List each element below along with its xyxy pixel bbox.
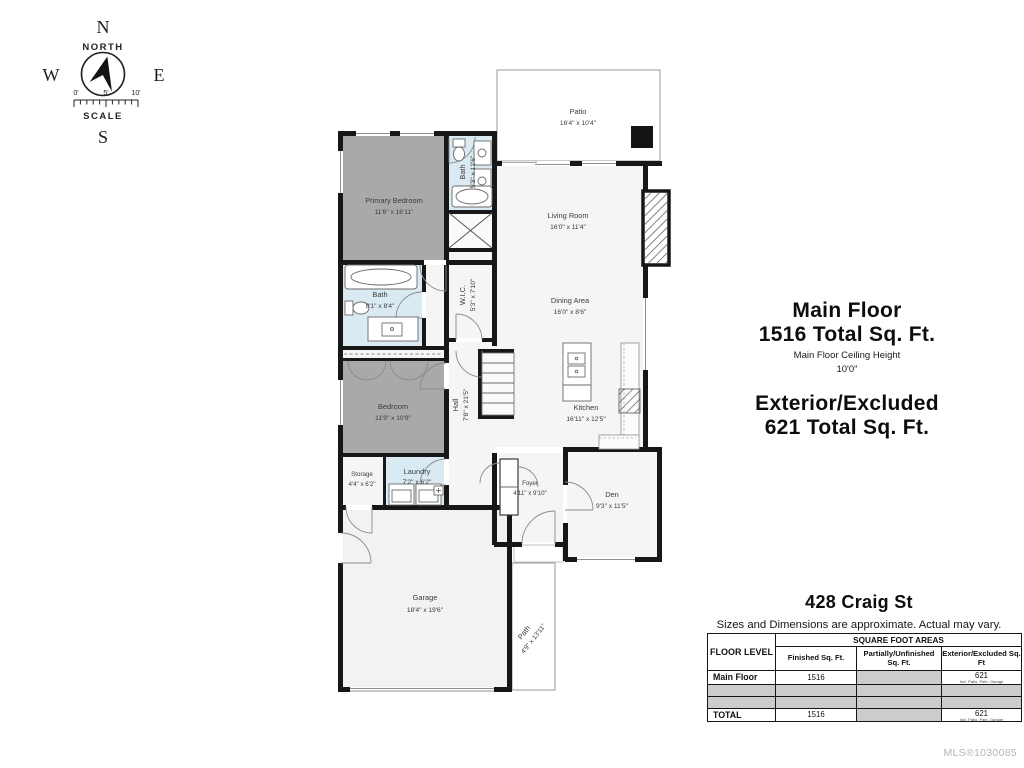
primary-bedroom-dims: 11'6" x 16'11" xyxy=(375,209,415,216)
main-floor-title: Main Floor xyxy=(697,299,997,323)
main-floor-total: 1516 Total Sq. Ft. xyxy=(697,323,997,347)
ceiling-height-value: 10'0" xyxy=(697,364,997,375)
address-block: 428 Craig St Sizes and Dimensions are ap… xyxy=(706,592,1012,631)
table-row-empty xyxy=(708,684,1022,696)
den-label: Den xyxy=(605,490,619,499)
table-row-main-floor: Main Floor 1516 621 Incl. Patio, Path, G… xyxy=(708,671,1022,685)
floorplan-drawing: Patio 16'4" x 10'4" Path 4'9" x 13'11" xyxy=(330,55,680,710)
compass-s: S xyxy=(98,127,108,147)
compass-e: E xyxy=(154,65,165,85)
room-path: Path 4'9" x 13'11" xyxy=(512,545,563,690)
kitchen-label: Kitchen xyxy=(574,403,599,412)
sqft-areas-header: SQUARE FOOT AREAS xyxy=(776,634,1022,647)
compass-w: W xyxy=(43,65,60,85)
row-level: Main Floor xyxy=(708,671,776,685)
toilet xyxy=(453,139,465,147)
scale-tick-0: 0' xyxy=(73,90,78,97)
garage-label: Garage xyxy=(413,593,438,602)
floor-level-header: FLOOR LEVEL xyxy=(708,634,776,671)
scale-label: SCALE xyxy=(83,111,123,122)
street-address: 428 Craig St xyxy=(706,592,1012,613)
laundry-fixtures xyxy=(389,484,443,505)
toilet xyxy=(345,301,353,315)
row-partial xyxy=(857,708,942,722)
wic-label: W.I.C. xyxy=(458,285,467,305)
bedroom-label: Bedroom xyxy=(378,402,408,411)
living-room-dims: 16'0" x 11'4" xyxy=(550,224,586,231)
table-row-empty xyxy=(708,696,1022,708)
row-exterior: 621 Incl. Patio, Path, Garage xyxy=(942,708,1022,722)
row-level: TOTAL xyxy=(708,708,776,722)
sqft-summary: Main Floor 1516 Total Sq. Ft. Main Floor… xyxy=(697,299,997,440)
scale-tick-5: 5' xyxy=(103,90,108,97)
col-exterior: Exterior/Excluded Sq. Ft xyxy=(942,647,1022,671)
table-row-total: TOTAL 1516 621 Incl. Patio, Path, Garage xyxy=(708,708,1022,722)
row-finished: 1516 xyxy=(776,671,857,685)
hall-dims: 7'8" x 21'5" xyxy=(463,388,470,421)
laundry-label: Laundry xyxy=(404,467,431,476)
floorplan-page: N NORTH W E 0' 5' 10' SCALE S xyxy=(0,0,1024,768)
vanity xyxy=(368,317,418,341)
dining-dims: 16'0" x 8'6" xyxy=(554,309,587,316)
stove xyxy=(619,389,640,413)
laundry-dims: 7'2" x 6'2" xyxy=(403,479,432,486)
hall-label: Hall xyxy=(451,398,460,411)
ceiling-height-label: Main Floor Ceiling Height xyxy=(697,350,997,361)
living-room-label: Living Room xyxy=(547,211,588,220)
kitchen-island xyxy=(563,343,591,401)
bath1-label: Bath xyxy=(458,164,467,179)
exterior-title: Exterior/Excluded xyxy=(697,392,997,416)
disclaimer: Sizes and Dimensions are approximate. Ac… xyxy=(706,619,1012,631)
foyer-dims: 4'11" x 9'10" xyxy=(513,490,546,497)
stairs xyxy=(482,353,514,415)
row-partial xyxy=(857,671,942,685)
bath1-dims: 5'3" x 12'6" xyxy=(470,155,477,188)
room-patio: Patio 16'4" x 10'4" xyxy=(497,70,660,161)
garage-dims: 18'4" x 19'6" xyxy=(407,607,444,614)
bath2-dims: 8'1" x 8'4" xyxy=(366,303,395,310)
storage-dims: 4'4" x 6'2" xyxy=(348,481,375,488)
exterior-note: Incl. Patio, Path, Garage xyxy=(942,680,1021,684)
patio-dims: 16'4" x 10'4" xyxy=(560,120,597,127)
bath2-label: Bath xyxy=(372,290,387,299)
bedroom-dims: 11'9" x 10'9" xyxy=(375,415,411,422)
primary-bedroom-label: Primary Bedroom xyxy=(365,196,423,205)
exterior-total: 621 Total Sq. Ft. xyxy=(697,416,997,440)
patio-label: Patio xyxy=(570,107,587,116)
kitchen-counter-lower xyxy=(599,435,639,449)
compass-north-label: NORTH xyxy=(82,42,123,53)
storage-label: Storage xyxy=(351,471,373,478)
col-finished: Finished Sq. Ft. xyxy=(776,647,857,671)
den-dims: 9'3" x 11'5" xyxy=(596,503,629,510)
wic-dims: 5'3" x 7'10" xyxy=(470,278,477,311)
dining-label: Dining Area xyxy=(551,296,590,305)
patio-pillar xyxy=(631,126,653,148)
col-partial: Partially/Unfinished Sq. Ft. xyxy=(857,647,942,671)
mls-number: MLS®1030085 xyxy=(943,747,1017,759)
porch-landing xyxy=(514,545,563,562)
sqft-table: FLOOR LEVEL SQUARE FOOT AREAS Finished S… xyxy=(707,633,1022,722)
compass-rose: N NORTH W E 0' 5' 10' SCALE S xyxy=(20,8,195,153)
scale-bar xyxy=(74,100,138,107)
row-finished: 1516 xyxy=(776,708,857,722)
compass-n: N xyxy=(97,17,110,37)
compass-needle-icon xyxy=(89,54,120,92)
exterior-note: Incl. Patio, Path, Garage xyxy=(942,718,1021,722)
kitchen-dims: 16'11" x 12'5" xyxy=(566,416,606,423)
row-exterior: 621 Incl. Patio, Path, Garage xyxy=(942,671,1022,685)
foyer-label: Foyer xyxy=(522,480,538,487)
scale-tick-10: 10' xyxy=(131,90,140,97)
fireplace xyxy=(643,191,669,265)
